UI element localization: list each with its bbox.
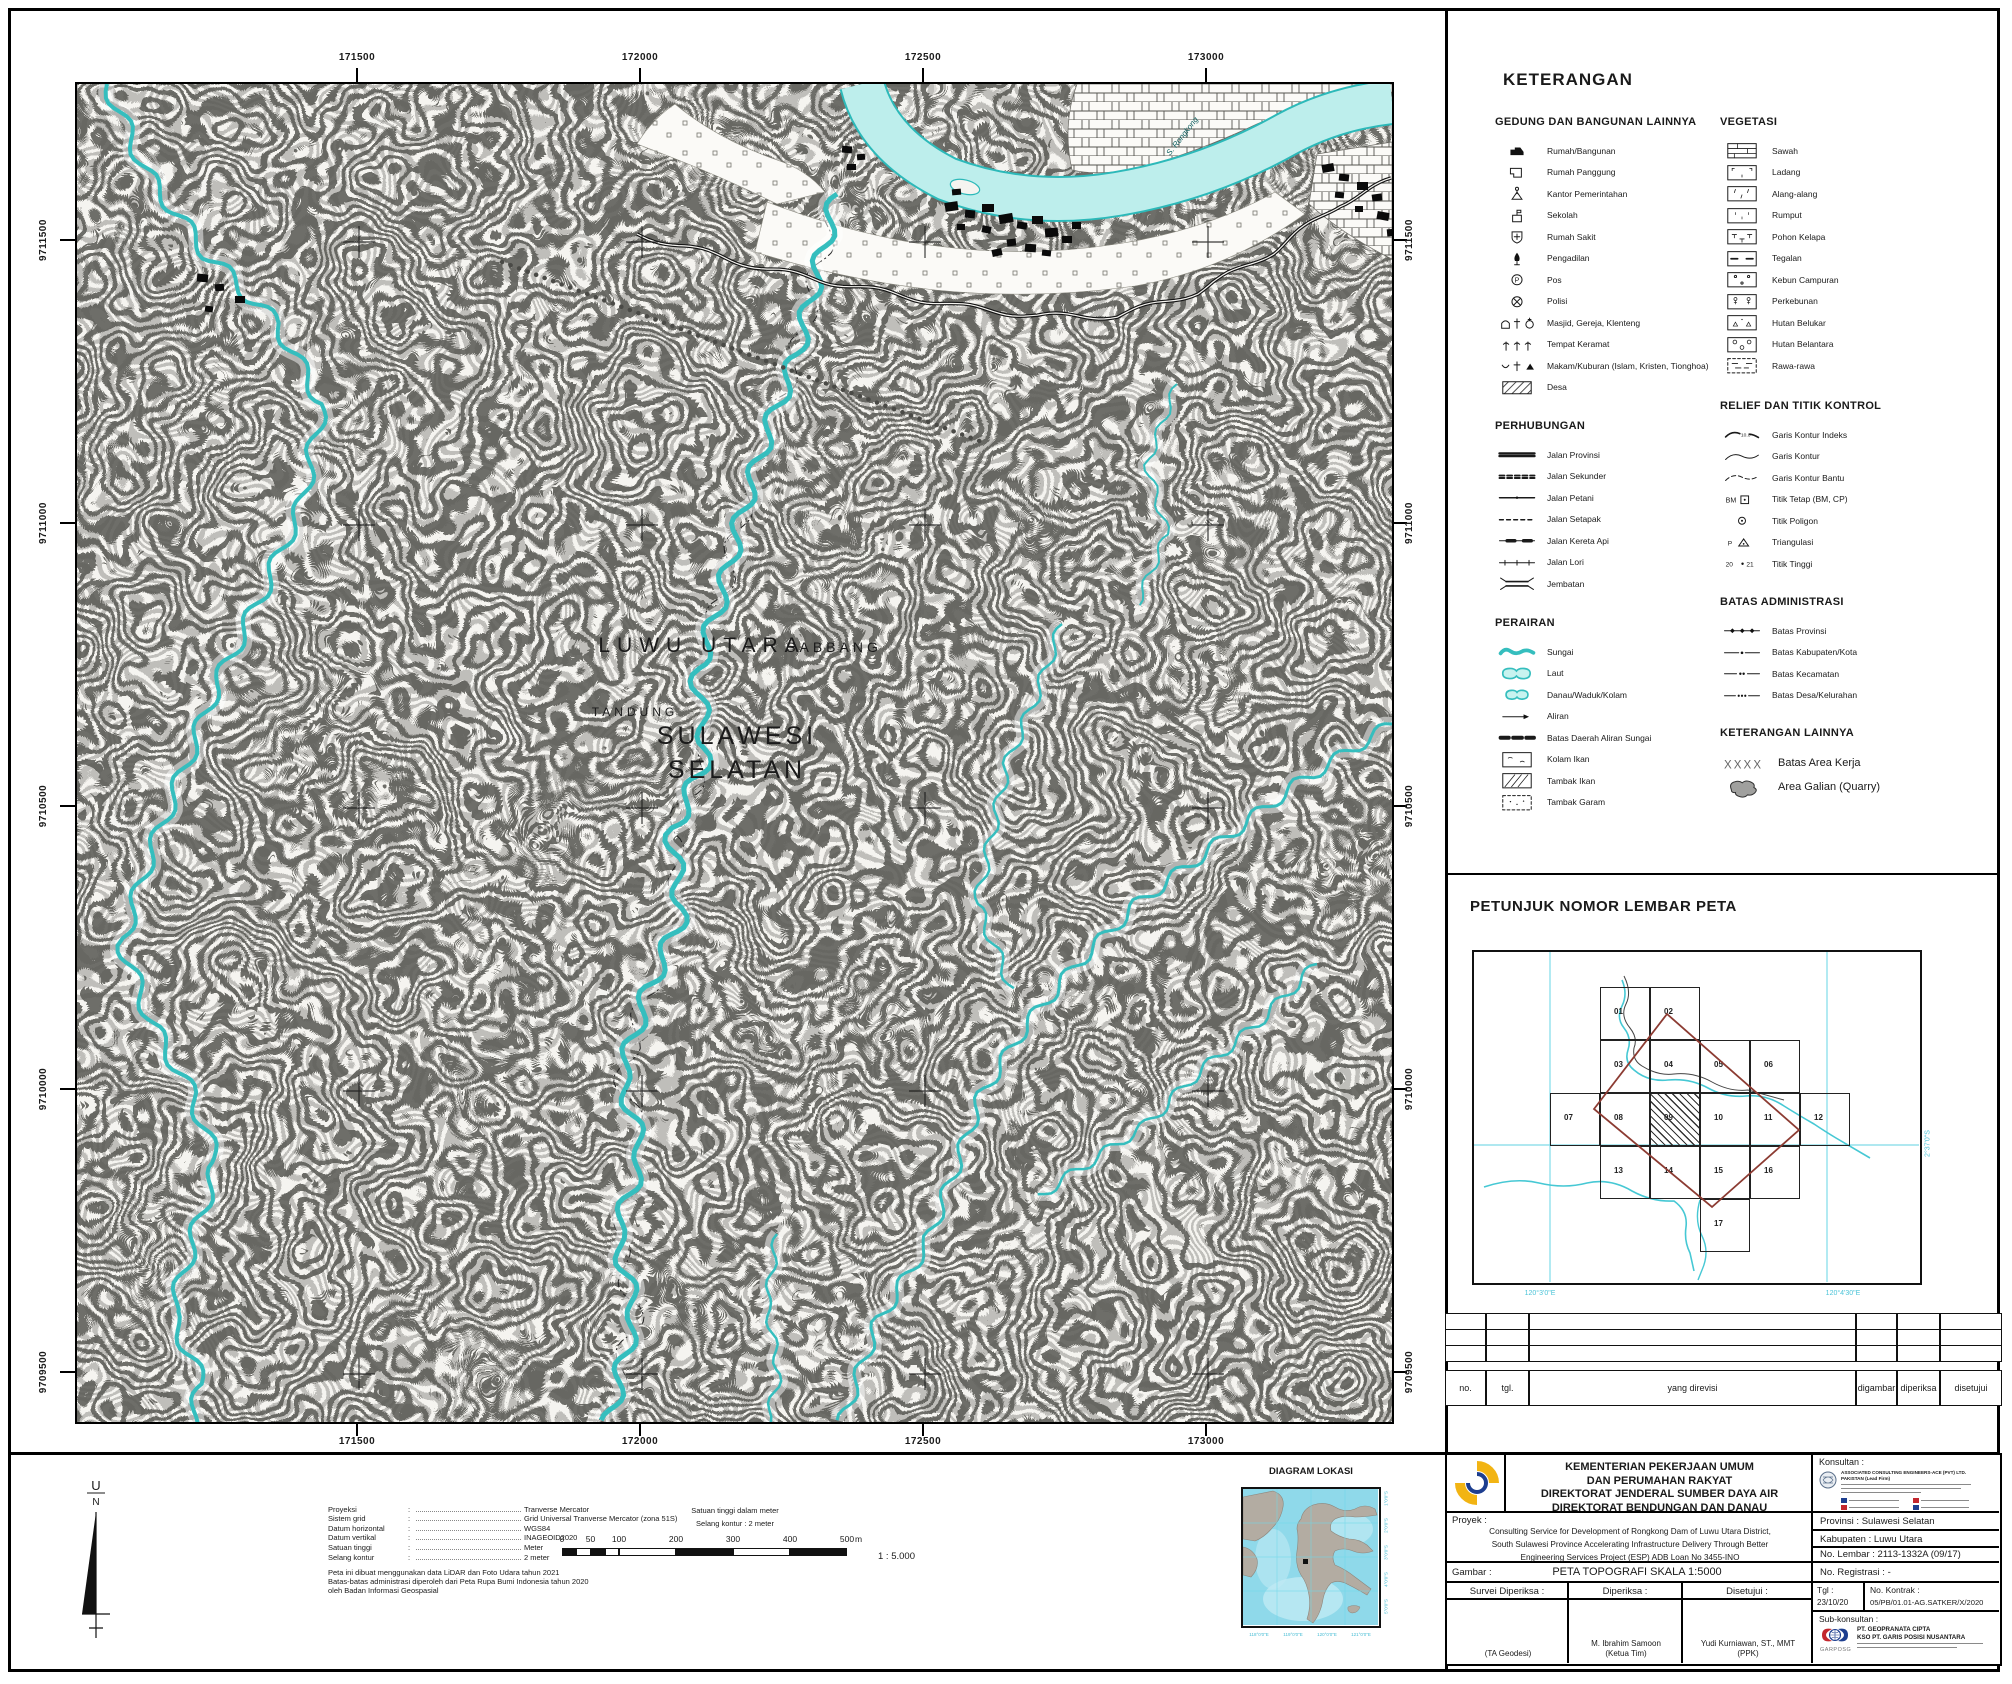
legend-item-label: Tambak Garam [1547, 797, 1605, 807]
auxiliary-contour-icon [1720, 469, 1764, 487]
stilt-house-icon [1495, 164, 1539, 182]
legend-item: Batas Provinsi [1720, 622, 1935, 641]
building [235, 296, 245, 303]
index-contour-icon: 10.0 [1720, 426, 1764, 444]
index-cell-14 [1650, 1146, 1700, 1199]
label-sulawesi: SULAWESI [657, 722, 817, 750]
ministry-logo-cell [1447, 1455, 1506, 1511]
legend-item: Tambak Garam [1495, 794, 1710, 813]
revision-row-cell [1445, 1313, 1486, 1330]
subconsultant-name-1: PT. GEOPRANATA CIPTA [1857, 1626, 1930, 1633]
legend-item: Laut [1495, 665, 1710, 684]
sulawesi-map [1243, 1489, 1378, 1625]
legend-item-label: Rawa-rawa [1772, 361, 1815, 371]
index-cell-number: 07 [1564, 1113, 1573, 1122]
plantation-icon [1720, 293, 1764, 311]
subconsultant-cell: Sub-konsultan : GARPOSG PT. GEOPRANATA C… [1813, 1612, 1999, 1663]
consultant-subtitle: PAKISTAN (Lead Firm) [1841, 1476, 1993, 1481]
revision-header-yangdirevisi: yang direvisi [1529, 1370, 1856, 1406]
index-cell-11 [1750, 1093, 1800, 1146]
sheet-index-title: PETUNJUK NOMOR LEMBAR PETA [1470, 898, 1737, 915]
contour-line-icon [1720, 448, 1764, 466]
legend-item: Batas Desa/Kelurahan [1720, 687, 1935, 706]
index-bottom-label: 120°4'30"E [1813, 1290, 1873, 1297]
drawing-label: Gambar : [1452, 1567, 1492, 1578]
top-coordinate-label: 171500 [322, 52, 392, 63]
building [952, 189, 961, 196]
building [965, 210, 976, 219]
province-boundary-icon [1720, 622, 1764, 640]
revision-row-cell [1897, 1345, 1940, 1362]
fish-farm-icon [1495, 772, 1539, 790]
regency-cell: Kabupaten : Luwu Utara [1813, 1531, 1999, 1549]
date-label: Tgl : [1817, 1585, 1834, 1595]
revision-row-cell [1940, 1313, 2002, 1330]
legend-item-label: Alang-alang [1772, 189, 1817, 199]
district-boundary-icon [1720, 665, 1764, 683]
legend-item: Pengadilan [1495, 250, 1710, 269]
ricefield-icon [1720, 142, 1764, 160]
grid-tick [60, 522, 75, 524]
regency-value: Kabupaten : Luwu Utara [1820, 1534, 1922, 1545]
index-cell-05 [1700, 1040, 1750, 1093]
revision-row-cell [1529, 1313, 1856, 1330]
index-cell-number: 03 [1614, 1060, 1623, 1069]
revision-row-cell [1445, 1329, 1486, 1346]
location-diagram-y-label: 2°0'0"S [1384, 1513, 1389, 1539]
revision-row-cell [1856, 1313, 1897, 1330]
government-office-icon [1495, 185, 1539, 203]
legend-item: Rumah Sakit [1495, 228, 1710, 247]
scale-bar-segment [562, 1548, 576, 1556]
legend-item: Jembatan [1495, 575, 1710, 594]
subconsultant-name-2: KSO PT. GARIS POSISI NUSANTARA [1857, 1634, 1965, 1641]
legend-section-title: KETERANGAN LAINNYA [1720, 727, 1854, 739]
partner-logo-icon [1841, 1498, 1847, 1503]
legend-item-label: Batas Kabupaten/Kota [1772, 647, 1857, 657]
dry-field-icon [1720, 250, 1764, 268]
grid-tick [1205, 68, 1207, 82]
grid-tick [922, 68, 924, 82]
legend-item: Aliran [1495, 708, 1710, 727]
regency-boundary-icon [1720, 644, 1764, 662]
label-tandung: TANDUNG [592, 705, 678, 719]
project-location-marker [1303, 1559, 1308, 1564]
legend-item: Jalan Sekunder [1495, 468, 1710, 487]
revision-row-cell [1897, 1313, 1940, 1330]
survey-signature-role: (TA Geodesi) [1447, 1649, 1569, 1658]
legend-item-label: Perkebunan [1772, 296, 1818, 306]
contract-cell: No. Kontrak : 05/PB/01.01-AG.SATKER/X/20… [1865, 1583, 1999, 1612]
location-diagram-x-label: 121°0'0"E [1346, 1632, 1376, 1637]
checked-signature-name: M. Ibrahim Samoon [1569, 1639, 1683, 1648]
legend-item-label: Batas Area Kerja [1778, 757, 1861, 769]
drawing-title-cell: Gambar : PETA TOPOGRAFI SKALA 1:5000 [1447, 1563, 1813, 1583]
legend-item-label: Batas Daerah Aliran Sungai [1547, 733, 1651, 743]
railway-icon [1495, 532, 1539, 550]
legend-item-label: Rumput [1772, 210, 1802, 220]
bottom-coordinate-label: 172000 [605, 1436, 675, 1447]
north-n-label: N [92, 1497, 99, 1508]
legend-item-label: Pengadilan [1547, 253, 1590, 263]
north-u-label: U [91, 1478, 100, 1493]
label-selatan: SELATAN [668, 756, 806, 784]
project-line: Consulting Service for Development of Ro… [1457, 1525, 1803, 1538]
building [1032, 216, 1043, 224]
legend-item-label: Batas Kecamatan [1772, 669, 1839, 679]
svg-text:20: 20 [1726, 561, 1734, 568]
index-cell-number: 11 [1764, 1113, 1772, 1122]
legend-item: Desa [1495, 379, 1710, 398]
legend-item: Sekolah [1495, 207, 1710, 226]
field-icon [1720, 164, 1764, 182]
index-cell-08 [1600, 1093, 1650, 1146]
legend-item-label: Hutan Belukar [1772, 318, 1826, 328]
revision-row-cell [1529, 1329, 1856, 1346]
approved-signature-name: Yudi Kurniawan, ST., MMT [1683, 1639, 1813, 1648]
river-icon [1495, 643, 1539, 661]
spot-height-icon: 2021 [1720, 555, 1764, 573]
building [1007, 239, 1017, 247]
approved-signature-cell: Yudi Kurniawan, ST., MMT (PPK) [1683, 1600, 1813, 1663]
ministry-line: DAN PERUMAHAN RAKYAT [1506, 1475, 1813, 1489]
legend-item-label: Ladang [1772, 167, 1800, 177]
fishpond-icon [1495, 751, 1539, 769]
index-cell-17 [1700, 1199, 1750, 1252]
location-diagram-title: DIAGRAM LOKASI [1245, 1466, 1377, 1477]
sheet-number-value: No. Lembar : 2113-1332A (09/17) [1820, 1549, 1961, 1560]
legend-item: Rumput [1720, 207, 1935, 226]
legend-item-label: Garis Kontur Bantu [1772, 473, 1844, 483]
legend-item: Garis Kontur [1720, 448, 1935, 467]
legend-item: Batas Kecamatan [1720, 665, 1935, 684]
index-cell-number: 09 [1664, 1113, 1673, 1122]
flow-arrow-icon [1495, 708, 1539, 726]
legend-item: Danau/Waduk/Kolam [1495, 686, 1710, 705]
building [215, 284, 225, 292]
legend-item: 10.0Garis Kontur Indeks [1720, 426, 1935, 445]
revision-row-cell [1486, 1329, 1529, 1346]
right-coordinate-label: 9709500 [1404, 1337, 1416, 1407]
top-coordinate-label: 172000 [605, 52, 675, 63]
consultant-logo-icon [1819, 1471, 1837, 1489]
legend-item-label: Garis Kontur Indeks [1772, 430, 1847, 440]
legend-item-label: Batas Provinsi [1772, 626, 1826, 636]
scale-tick-label: 0 [547, 1534, 577, 1544]
legend-title: KETERANGAN [1503, 70, 1633, 90]
legend-item-label: Rumah Sakit [1547, 232, 1596, 242]
mixed-garden-icon [1720, 271, 1764, 289]
legend-item-label: Pos [1547, 275, 1562, 285]
legend-item-label: Pohon Kelapa [1772, 232, 1825, 242]
topographic-map: LUWU UTARA SABBANG TANDUNG SULAWESI SELA… [77, 84, 1392, 1422]
legend-item-label: Tempat Keramat [1547, 339, 1609, 349]
legend-item-label: Rumah Panggung [1547, 167, 1616, 177]
checked-signature-cell: M. Ibrahim Samoon (Ketua Tim) [1569, 1600, 1683, 1663]
index-bottom-label: 120°3'0"E [1510, 1290, 1570, 1297]
approved-signature-role: (PPK) [1683, 1649, 1813, 1658]
scale-tick-label: 100 [604, 1534, 634, 1544]
right-coordinate-label: 9710500 [1404, 771, 1416, 841]
legend-item: Polisi [1495, 293, 1710, 312]
index-cell-15 [1700, 1146, 1750, 1199]
revision-table: no.tgl.yang direvisidigambardiperiksadis… [1445, 1313, 2002, 1406]
revision-row-cell [1856, 1329, 1897, 1346]
registration-cell: No. Registrasi : - [1813, 1563, 1999, 1583]
index-cell-01 [1600, 987, 1650, 1040]
legend-item: Tegalan [1720, 250, 1935, 269]
garposg-logo-icon [1819, 1625, 1851, 1645]
index-cell-12 [1800, 1093, 1850, 1146]
grid-tick [356, 68, 358, 82]
ministry-line: KEMENTERIAN PEKERJAAN UMUM [1506, 1461, 1813, 1475]
index-cell-number: 17 [1714, 1219, 1723, 1228]
map-note: Peta ini dibuat menggunakan data LiDAR d… [328, 1568, 788, 1577]
grid-tick [60, 1088, 75, 1090]
legend-item: Hutan Belukar [1720, 314, 1935, 333]
legend-item: Ladang [1720, 164, 1935, 183]
legend-item: Jalan Petani [1495, 489, 1710, 508]
post-office-icon: P [1495, 271, 1539, 289]
building [1387, 229, 1392, 237]
project-line: South Sulawesi Province Accelerating Inf… [1457, 1538, 1803, 1551]
title-block: KEMENTERIAN PEKERJAAN UMUM DAN PERUMAHAN… [1445, 1453, 2002, 1666]
legend-item: Rumah Panggung [1495, 164, 1710, 183]
date-cell: Tgl : 23/10/20 [1813, 1583, 1865, 1612]
legend-item-label: Aliran [1547, 711, 1569, 721]
index-cell-number: 12 [1814, 1113, 1823, 1122]
building [944, 201, 958, 212]
courthouse-icon [1495, 250, 1539, 268]
legend-item: Jalan Kereta Api [1495, 532, 1710, 551]
pu-ministry-logo-icon [1454, 1461, 1500, 1505]
revision-row-cell [1897, 1329, 1940, 1346]
legend-item-label: Sungai [1547, 647, 1573, 657]
scale-bar-segment [576, 1548, 590, 1556]
legend-item-label: Danau/Waduk/Kolam [1547, 690, 1627, 700]
garposg-wordmark: GARPOSG [1820, 1647, 1851, 1653]
provincial-road-icon [1495, 446, 1539, 464]
building [197, 273, 209, 282]
scale-tick-label: 200 [661, 1534, 691, 1544]
grid-tick [922, 1422, 924, 1436]
building [205, 305, 214, 312]
svg-text:10.0: 10.0 [1741, 432, 1751, 438]
legend-item: Kantor Pemerintahan [1495, 185, 1710, 204]
legend-section-title: GEDUNG DAN BANGUNAN LAINNYA [1495, 116, 1696, 128]
index-cell-16 [1750, 1146, 1800, 1199]
label-luwu-utara: LUWU UTARA [598, 634, 805, 657]
legend-section-title: PERAIRAN [1495, 617, 1555, 629]
legend-item-label: Batas Desa/Kelurahan [1772, 690, 1857, 700]
legend-item: 2021Titik Tinggi [1720, 555, 1935, 574]
index-cell-13 [1600, 1146, 1650, 1199]
right-coordinate-label: 9711500 [1404, 205, 1416, 275]
building [1072, 222, 1081, 229]
height-unit-caption: Satuan tinggi dalam meter [585, 1506, 885, 1515]
legend-item-label: Sekolah [1547, 210, 1578, 220]
legend-item: Sawah [1720, 142, 1935, 161]
legend-item-label: Masjid, Gereja, Klenteng [1547, 318, 1640, 328]
index-cell-number: 16 [1764, 1166, 1773, 1175]
index-right-label: 2°37'0"S [1925, 1114, 1932, 1174]
building [1339, 173, 1350, 181]
left-coordinate-label: 9709500 [38, 1337, 50, 1407]
index-cell-number: 13 [1614, 1166, 1623, 1175]
legend-section-title: BATAS ADMINISTRASI [1720, 596, 1844, 608]
location-diagram-x-label: 118°0'0"E [1244, 1632, 1274, 1637]
index-cell-04 [1650, 1040, 1700, 1093]
scale-bar-segment [605, 1548, 619, 1556]
legend-item-label: Triangulasi [1772, 537, 1813, 547]
building [1335, 192, 1344, 199]
polygon-point-icon [1720, 512, 1764, 530]
svg-text:BM: BM [1726, 496, 1737, 504]
legend-item: BMTitik Tetap (BM, CP) [1720, 491, 1935, 510]
index-cell-02 [1650, 987, 1700, 1040]
footpath-icon [1495, 511, 1539, 529]
checked-header: Diperiksa : [1569, 1583, 1683, 1600]
legend-item-label: Garis Kontur [1772, 451, 1820, 461]
project-cell: Proyek : Consulting Service for Developm… [1447, 1513, 1813, 1563]
index-cell-number: 10 [1714, 1113, 1723, 1122]
legend-item-label: Area Galian (Quarry) [1778, 781, 1880, 793]
date-value: 23/10/20 [1817, 1598, 1848, 1607]
map-notes: Peta ini dibuat menggunakan data LiDAR d… [328, 1568, 788, 1595]
worship-places-icon [1495, 314, 1539, 332]
ministry-cell: KEMENTERIAN PEKERJAAN UMUM DAN PERUMAHAN… [1447, 1455, 1813, 1513]
index-cell-03 [1600, 1040, 1650, 1093]
shrub-forest-icon [1720, 314, 1764, 332]
location-diagram-x-label: 120°0'0"E [1312, 1632, 1342, 1637]
index-cell-number: 02 [1664, 1007, 1673, 1016]
building [1017, 221, 1028, 229]
legend-item-label: Desa [1547, 382, 1567, 392]
location-diagram-y-label: 5°0'0"S [1384, 1594, 1389, 1620]
grass-icon [1720, 207, 1764, 225]
legend-item-label: Jalan Setapak [1547, 514, 1601, 524]
consultant-label: Konsultan : [1819, 1457, 1864, 1467]
revision-header-no: no. [1445, 1370, 1486, 1406]
legend-divider [1448, 873, 2000, 875]
reed-grass-icon [1720, 185, 1764, 203]
consultant-cell: Konsultan : ASSOCIATED CONSULTING ENGINE… [1813, 1455, 1999, 1513]
revision-row-cell [1486, 1345, 1529, 1362]
revision-row-cell [1856, 1345, 1897, 1362]
province-cell: Provinsi : Sulawesi Selatan [1813, 1513, 1999, 1531]
sheet-number-cell: No. Lembar : 2113-1332A (09/17) [1813, 1548, 1999, 1563]
legend-item: XXXXBatas Area Kerja [1720, 753, 1935, 772]
legend-item: Tambak Ikan [1495, 772, 1710, 791]
scale-bar-segment [676, 1548, 733, 1556]
wild-forest-icon [1720, 336, 1764, 354]
work-area-boundary-icon: XXXX [1720, 753, 1772, 774]
sea-icon [1495, 665, 1539, 683]
scale-tick-label: 300 [718, 1534, 748, 1544]
farm-road-icon [1495, 489, 1539, 507]
drawing-title-value: PETA TOPOGRAFI SKALA 1:5000 [1507, 1566, 1767, 1578]
hospital-icon [1495, 228, 1539, 246]
legend-item: Hutan Belantara [1720, 336, 1935, 355]
contract-value: 05/PB/01.01-AG.SATKER/X/2020 [1870, 1598, 1983, 1607]
svg-text:P: P [1515, 276, 1520, 284]
legend-item: Tempat Keramat [1495, 336, 1710, 355]
revision-header-disetujui: disetujui [1940, 1370, 2002, 1406]
building [1025, 244, 1037, 253]
index-cell-current-sheet [1650, 1093, 1700, 1146]
approved-header: Disetujui : [1683, 1583, 1813, 1600]
index-cell-number: 08 [1614, 1113, 1623, 1122]
scale-bar-segment [591, 1548, 605, 1556]
bottom-coordinate-label: 173000 [1171, 1436, 1241, 1447]
grid-tick [1205, 1422, 1207, 1436]
province-value: Provinsi : Sulawesi Selatan [1820, 1516, 1935, 1527]
legend-item-label: Makam/Kuburan (Islam, Kristen, Tionghoa) [1547, 361, 1709, 371]
police-icon [1495, 293, 1539, 311]
partner-logo-icon [1913, 1505, 1919, 1510]
location-diagram-x-label: 119°0'0"E [1278, 1632, 1308, 1637]
left-coordinate-label: 9711000 [38, 488, 50, 558]
grid-tick [60, 239, 75, 241]
legend-item-label: Jalan Sekunder [1547, 471, 1606, 481]
building [1062, 236, 1072, 243]
top-coordinate-label: 173000 [1171, 52, 1241, 63]
building [857, 154, 866, 161]
building [847, 164, 856, 170]
grid-tick [60, 805, 75, 807]
legend-item-label: Kolam Ikan [1547, 754, 1590, 764]
right-coordinate-label: 9710000 [1404, 1054, 1416, 1124]
revision-header-diperiksa: diperiksa [1897, 1370, 1940, 1406]
location-diagram-y-label: 1°0'0"S [1384, 1486, 1389, 1512]
index-cell-number: 04 [1664, 1060, 1673, 1069]
map-frame: LUWU UTARA SABBANG TANDUNG SULAWESI SELA… [75, 82, 1394, 1424]
house-icon [1495, 142, 1539, 160]
legend-item: Area Galian (Quarry) [1720, 777, 1935, 796]
legend-item: Batas Kabupaten/Kota [1720, 644, 1935, 663]
left-coordinate-label: 9710000 [38, 1054, 50, 1124]
legend-item-label: Jembatan [1547, 579, 1584, 589]
left-coordinate-label: 9711500 [38, 205, 50, 275]
legend-item: Jalan Provinsi [1495, 446, 1710, 465]
scale-bar-segment [619, 1548, 676, 1556]
school-icon [1495, 207, 1539, 225]
legend-item-label: Tambak Ikan [1547, 776, 1595, 786]
scale-bar-segment [790, 1548, 847, 1556]
revision-row-cell [1940, 1345, 2002, 1362]
building [1045, 227, 1059, 237]
partner-logo-icon [1913, 1498, 1919, 1503]
bottom-coordinate-label: 171500 [322, 1436, 392, 1447]
legend-item: Kebun Campuran [1720, 271, 1935, 290]
secondary-road-icon [1495, 468, 1539, 486]
contour-texture-fine [77, 84, 1392, 1422]
scale-bar-segment [733, 1548, 790, 1556]
legend-item-label: Kebun Campuran [1772, 275, 1839, 285]
revision-row-cell [1486, 1313, 1529, 1330]
building [1042, 250, 1052, 257]
legend-item: Sungai [1495, 643, 1710, 662]
legend-item: PPos [1495, 271, 1710, 290]
village-area-icon [1495, 379, 1539, 397]
legend-item-label: Rumah/Bangunan [1547, 146, 1616, 156]
building [1355, 206, 1363, 212]
partner-logo-icon [1841, 1505, 1847, 1510]
index-cell-number: 06 [1764, 1060, 1773, 1069]
legend-item: Jalan Lori [1495, 554, 1710, 573]
legend-section-title: VEGETASI [1720, 116, 1777, 128]
svg-text:21: 21 [1746, 561, 1754, 568]
